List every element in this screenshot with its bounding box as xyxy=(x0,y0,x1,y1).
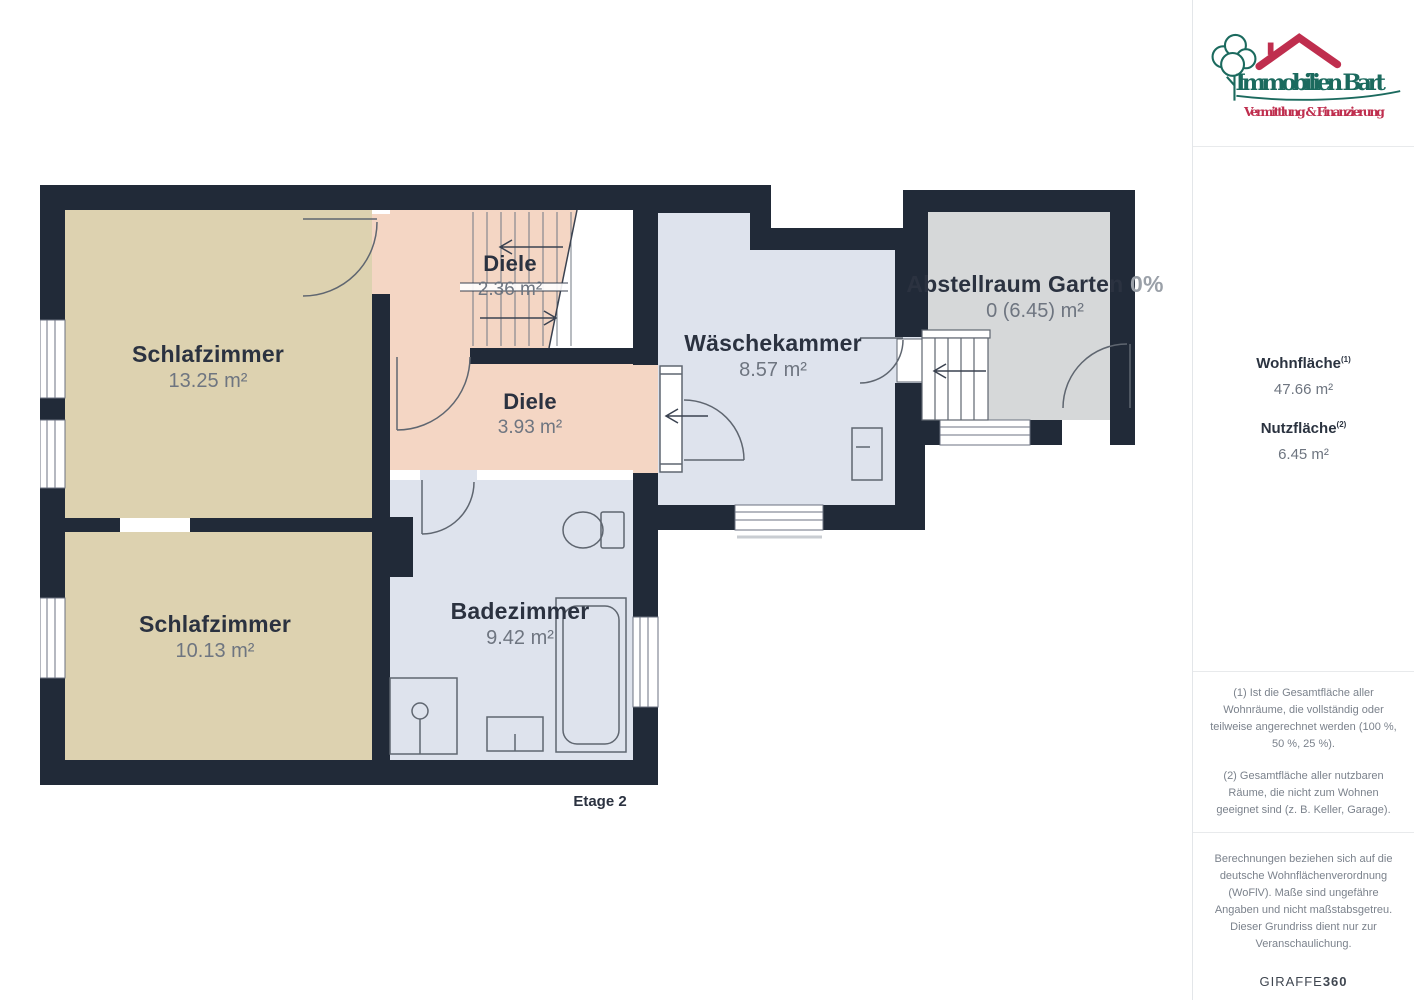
footnotes-section: (1) Ist die Gesamtfläche aller Wohnräume… xyxy=(1193,672,1414,833)
area-summary-section: Wohnfläche(1) 47.66 m² Nutzfläche(2) 6.4… xyxy=(1193,147,1414,672)
footnote-1: (1) Ist die Gesamtfläche aller Wohnräume… xyxy=(1207,685,1400,753)
logo-subtitle: Vermittlung & Finanzierung xyxy=(1243,104,1385,119)
wall-storage-top xyxy=(903,190,1135,212)
wall-hall-divider xyxy=(470,348,640,364)
wall-top xyxy=(40,185,658,210)
room-label-diele-1: Diele 2.36 m² xyxy=(420,251,600,301)
wall-bedroom-divider-b xyxy=(190,518,372,532)
nutzflaeche-block: Nutzfläche(2) 6.45 m² xyxy=(1261,420,1347,463)
wall-laundry-right-b xyxy=(895,383,925,530)
wall-laundry-top-b xyxy=(750,228,895,250)
wall-laundry-bottom-a xyxy=(658,505,735,530)
wall-east-b xyxy=(633,473,658,617)
wall-left xyxy=(40,210,65,785)
roof-icon xyxy=(1259,38,1337,67)
window-left-3 xyxy=(40,598,65,678)
nutzflaeche-value: 6.45 m² xyxy=(1261,446,1347,463)
wall-pillar xyxy=(388,517,413,577)
logo-section: Immobilien Bart Vermittlung & Finanzieru… xyxy=(1193,0,1414,147)
doorway-schlafzimmer-1 xyxy=(372,214,390,296)
floorplan-page: Schlafzimmer 13.25 m² Diele 2.36 m² Diel… xyxy=(0,0,1414,1000)
window-laundry-south xyxy=(735,505,823,530)
company-logo: Immobilien Bart Vermittlung & Finanzieru… xyxy=(1204,14,1404,132)
wall-bedroom-divider-a xyxy=(65,518,120,532)
wall-laundry-top-a xyxy=(655,185,771,213)
giraffe360-logo: GIRAFFE360 xyxy=(1259,974,1347,989)
wohnflaeche-value: 47.66 m² xyxy=(1256,381,1351,398)
stairs-garden xyxy=(922,330,990,420)
disclaimer-text: Berechnungen beziehen sich auf die deuts… xyxy=(1207,851,1400,953)
wohnflaeche-block: Wohnfläche(1) 47.66 m² xyxy=(1256,355,1351,398)
window-left-2 xyxy=(40,420,65,488)
floor-label: Etage 2 xyxy=(450,793,750,810)
logo-title: Immobilien Bart xyxy=(1235,70,1386,96)
room-label-abstellraum: Abstellraum Garten 0% 0 (6.45) m² xyxy=(900,271,1170,323)
wall-bottom xyxy=(40,760,658,785)
room-label-schlafzimmer-2: Schlafzimmer 10.13 m² xyxy=(65,611,365,663)
sidebar: Immobilien Bart Vermittlung & Finanzieru… xyxy=(1192,0,1414,1000)
disclaimer-section: Berechnungen beziehen sich auf die deuts… xyxy=(1193,833,1414,1000)
wall-storage-right xyxy=(1110,212,1135,445)
wall-laundry-bottom-b xyxy=(823,505,895,530)
wall-mid-column xyxy=(372,294,390,760)
wall-east-c xyxy=(633,707,658,760)
room-label-badezimmer: Badezimmer 9.42 m² xyxy=(400,598,640,650)
floorplan-canvas: Schlafzimmer 13.25 m² Diele 2.36 m² Diel… xyxy=(0,0,1192,1000)
wohnflaeche-label: Wohnfläche(1) xyxy=(1256,355,1351,372)
room-label-schlafzimmer-1: Schlafzimmer 13.25 m² xyxy=(58,341,358,393)
wall-storage-bottom-a xyxy=(903,420,940,445)
room-label-diele-2: Diele 3.93 m² xyxy=(430,389,630,439)
wall-storage-bottom-b xyxy=(1030,420,1062,445)
room-label-waeschekammer: Wäschekammer 8.57 m² xyxy=(653,330,893,382)
window-storage-south xyxy=(940,420,1030,445)
nutzflaeche-label: Nutzfläche(2) xyxy=(1261,420,1347,437)
footnote-2: (2) Gesamtfläche aller nutzbaren Räume, … xyxy=(1207,768,1400,819)
